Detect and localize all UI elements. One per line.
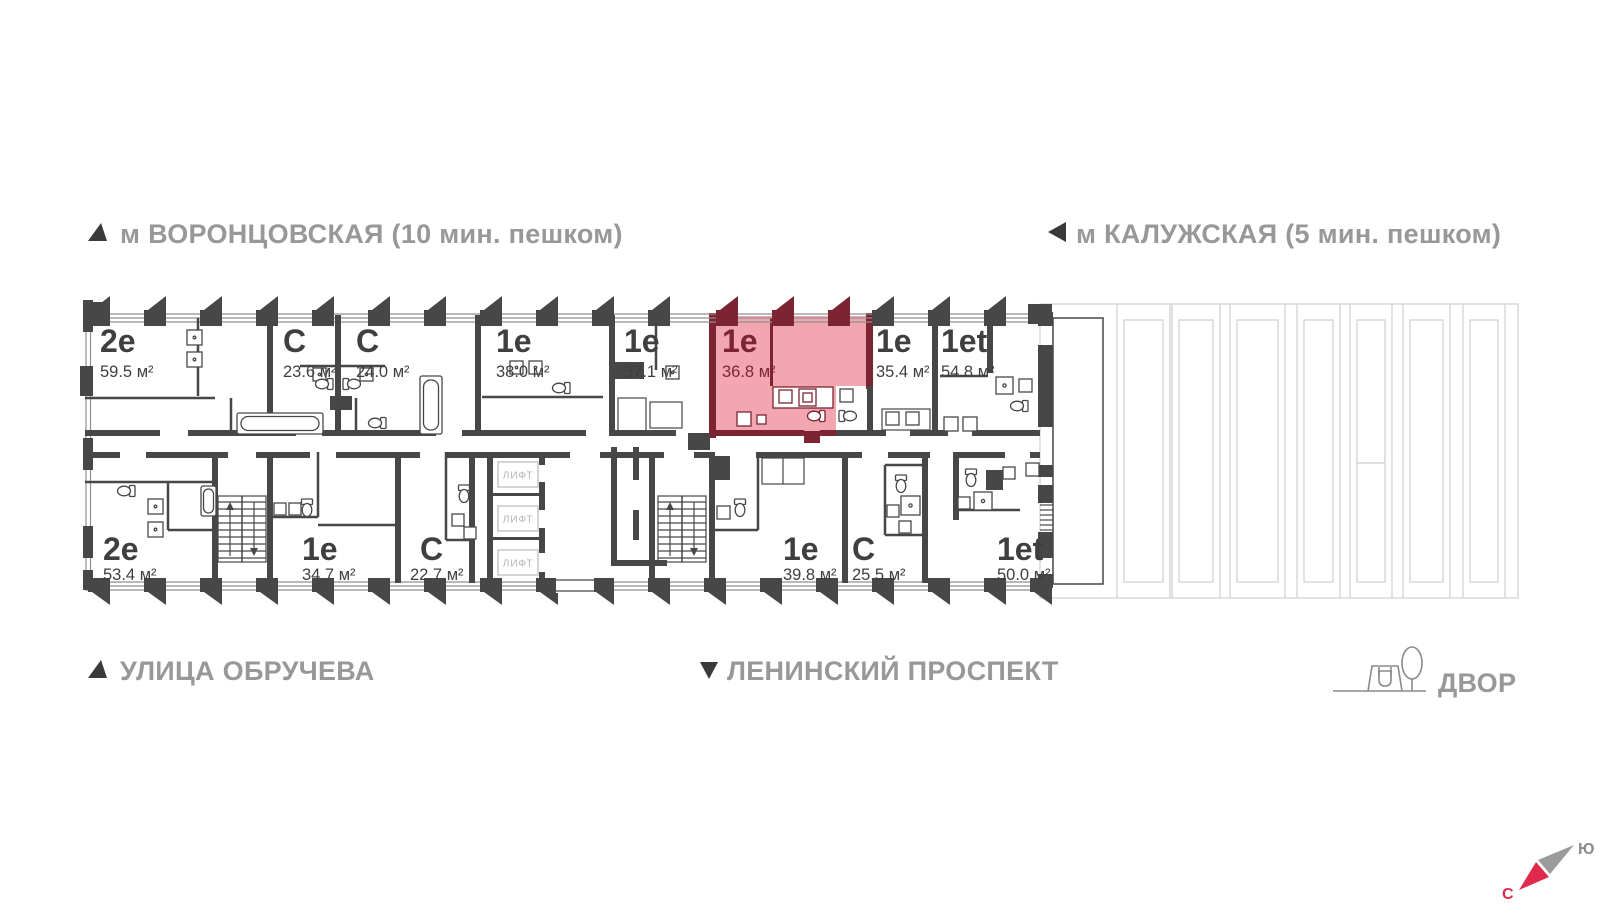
compass-south-needle: [1538, 845, 1574, 874]
elevator-label: ЛИФТ: [503, 558, 534, 570]
apartment-bottom-2e-53[interactable]: 2е 53.4 м²: [91, 458, 212, 584]
apartment-type: 1et: [997, 531, 1044, 567]
direction-up-triangle-icon: [88, 223, 107, 241]
compass-south-text: Ю: [1578, 841, 1595, 858]
apartment-area: 22.7 м²: [410, 566, 464, 584]
apartment-area: 36.8 м²: [722, 363, 776, 381]
apartment-area: 54.8 м²: [941, 363, 995, 381]
apartment-type: 2е: [103, 531, 139, 567]
floorplan-page: ЛИФТ ЛИФТ ЛИФТ: [0, 0, 1600, 920]
apartment-area: 50.0 м²: [997, 566, 1051, 584]
apartment-top-s-24[interactable]: С 24.0 м²: [341, 323, 475, 430]
apartment-top-1et-54[interactable]: 1et 54.8 м²: [938, 323, 1038, 430]
apartment-type: 1е: [876, 323, 912, 359]
apartment-type: С: [420, 531, 443, 567]
direction-left-triangle-icon: [1048, 222, 1066, 242]
apartment-type: 1е: [722, 323, 758, 359]
exterior-wall-right-and-balcony: [1038, 312, 1103, 588]
facade-top: [85, 296, 1052, 326]
apartment-area: 34.7 м²: [302, 566, 356, 584]
elevator-bank: ЛИФТ ЛИФТ ЛИФТ: [498, 462, 538, 575]
apartment-type: С: [356, 323, 379, 359]
floorplan-canvas: ЛИФТ ЛИФТ ЛИФТ: [0, 0, 1600, 920]
apartment-area: 25.5 м²: [852, 566, 906, 584]
metro-left-label: м ВОРОНЦОВСКАЯ (10 мин. пешком): [88, 219, 623, 249]
street-left-label: УЛИЦА ОБРУЧЕВА: [88, 656, 375, 686]
apartment-area: 35.4 м²: [876, 363, 930, 381]
elevator-label: ЛИФТ: [503, 470, 534, 482]
apartment-top-1e-35[interactable]: 1е 35.4 м²: [873, 323, 932, 430]
apartment-type: 1е: [624, 323, 660, 359]
apartment-top-s-23[interactable]: С 23.6 м²: [273, 323, 337, 430]
apartment-type: 2е: [100, 323, 136, 359]
street-center-label: ЛЕНИНСКИЙ ПРОСПЕКТ: [700, 655, 1059, 686]
balcony-door-hatch: [1040, 505, 1053, 530]
apartment-top-1e-37[interactable]: 1е 37.1 м²: [615, 323, 709, 430]
apartment-area: 59.5 м²: [100, 363, 154, 381]
apartment-top-2e-59[interactable]: 2е 59.5 м²: [91, 323, 267, 430]
apartment-area: 39.8 м²: [783, 566, 837, 584]
apartment-area: 53.4 м²: [103, 566, 157, 584]
elevator-3: ЛИФТ: [498, 550, 538, 575]
street-left-text: УЛИЦА ОБРУЧЕВА: [120, 656, 375, 686]
yard-label: ДВОР: [1333, 647, 1516, 698]
metro-left-text: м ВОРОНЦОВСКАЯ (10 мин. пешком): [120, 219, 623, 249]
apartment-area: 38.0 м²: [496, 363, 550, 381]
metro-right-text: м КАЛУЖСКАЯ (5 мин. пешком): [1076, 219, 1501, 249]
stairwell-right: [658, 496, 706, 562]
apartment-area: 24.0 м²: [356, 363, 410, 381]
compass: Ю С: [1502, 841, 1595, 903]
elevator-1: ЛИФТ: [498, 462, 538, 487]
apartment-bottom-1et-50[interactable]: 1et 50.0 м²: [928, 458, 1051, 584]
apartment-area: 37.1 м²: [624, 363, 678, 381]
direction-up-triangle-icon: [88, 660, 107, 678]
direction-down-triangle-icon: [700, 662, 718, 679]
compass-north-text: С: [1502, 886, 1514, 903]
building-entrance: [556, 578, 594, 593]
apartment-bottom-s-22[interactable]: С 22.7 м²: [401, 458, 469, 584]
unbuilt-section-outline: [1040, 304, 1518, 598]
apartment-type: 1е: [496, 323, 532, 359]
apartment-bottom-1e-39[interactable]: 1е 39.8 м²: [715, 458, 842, 584]
apartment-type: С: [852, 531, 875, 567]
elevator-label: ЛИФТ: [503, 514, 534, 526]
street-center-text: ЛЕНИНСКИЙ ПРОСПЕКТ: [727, 655, 1059, 686]
apartment-type: 1е: [783, 531, 819, 567]
apartment-top-1e-38[interactable]: 1е 38.0 м²: [481, 323, 609, 430]
metro-right-label: м КАЛУЖСКАЯ (5 мин. пешком): [1048, 219, 1501, 249]
apartment-area: 23.6 м²: [283, 363, 337, 381]
apartment-type: С: [283, 323, 306, 359]
yard-text: ДВОР: [1438, 668, 1516, 698]
elevator-2: ЛИФТ: [498, 506, 538, 531]
stairwell-left: [218, 496, 266, 562]
facade-bottom: [85, 578, 1052, 605]
apartment-bottom-s-25[interactable]: С 25.5 м²: [848, 458, 922, 584]
apartment-type: 1et: [941, 323, 988, 359]
apartment-top-1e-36-selected[interactable]: 1е 36.8 м²: [716, 316, 866, 433]
apartment-type: 1е: [302, 531, 338, 567]
apartment-bottom-1e-34[interactable]: 1е 34.7 м²: [273, 458, 395, 584]
yard-icon: [1333, 647, 1426, 691]
